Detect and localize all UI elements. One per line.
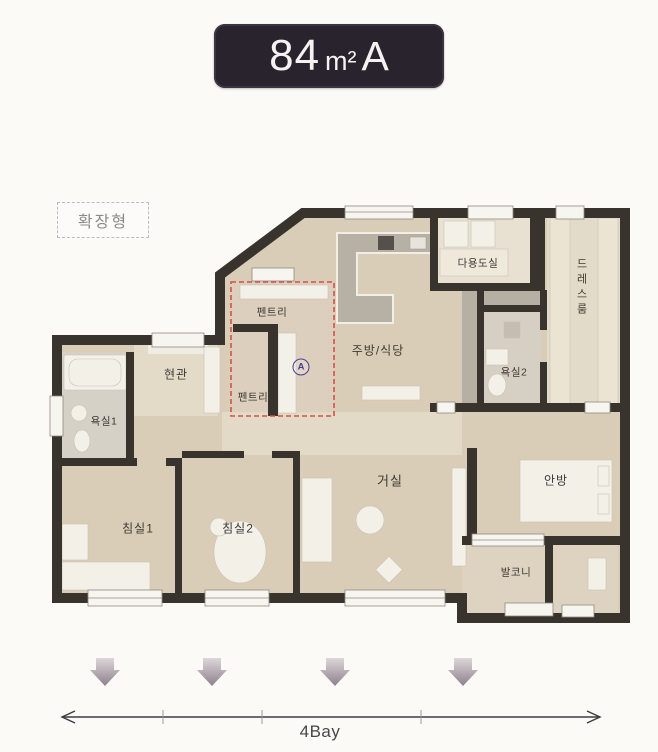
room-label-dressroom: 드레스룸 <box>573 258 589 318</box>
room-label-bedroom1: 침실1 <box>122 520 154 537</box>
sofa <box>302 478 332 562</box>
dining-table <box>362 386 420 400</box>
bed1-desk <box>62 524 88 560</box>
room-label-pantry-bottom: 펜트리 <box>238 390 268 405</box>
hall-floor <box>222 412 462 455</box>
expansion-marker-a: A <box>293 359 310 376</box>
living-rug <box>356 506 384 534</box>
bay-count-label: 4Bay <box>300 722 341 742</box>
bed1-bed <box>62 562 150 590</box>
tv-cabinet <box>452 468 466 566</box>
washer <box>444 221 468 247</box>
pantry-shelf <box>240 285 328 299</box>
bay-arrow-4 <box>448 658 478 686</box>
wall <box>293 451 300 598</box>
wall <box>430 213 438 290</box>
badge-area: 84 <box>269 24 320 88</box>
wall <box>430 283 545 291</box>
entrance-door <box>152 333 204 347</box>
bath1-sink <box>71 405 87 421</box>
wall <box>455 403 585 412</box>
wall <box>175 458 182 598</box>
bay-arrow-1 <box>90 658 120 686</box>
bay-arrows <box>90 658 478 686</box>
window-pantry <box>252 268 294 281</box>
plan-option-box: 확장형 <box>57 202 149 238</box>
wall <box>540 362 547 410</box>
badge-unit: m² <box>325 31 356 91</box>
room-label-bath2: 욕실2 <box>501 365 528 380</box>
wall <box>467 448 477 545</box>
wall <box>530 213 545 290</box>
room-label-bath1: 욕실1 <box>91 414 118 429</box>
wall <box>268 332 278 416</box>
bay-annotation <box>62 658 600 724</box>
window-kitchen <box>345 206 413 219</box>
door-balcony-room <box>562 605 594 617</box>
wall <box>233 324 278 332</box>
badge-type-letter: A <box>362 24 389 88</box>
door-master <box>437 402 455 413</box>
wall <box>430 403 437 412</box>
window-utility <box>468 206 513 219</box>
dryer <box>471 221 495 247</box>
bath1-toilet <box>74 430 90 452</box>
area-type-badge: 84m²A <box>214 24 444 88</box>
room-label-master: 안방 <box>544 472 568 489</box>
bath2-sink <box>486 349 508 365</box>
boiler-unit <box>588 558 606 590</box>
wall <box>57 458 137 466</box>
room-label-kitchen: 주방/식당 <box>352 342 405 359</box>
floor-plan-drawing <box>0 0 658 752</box>
wall <box>182 451 244 458</box>
room-label-pantry-top: 펜트리 <box>257 305 287 320</box>
wardrobe-right <box>598 218 618 404</box>
room-label-utility: 다용도실 <box>458 256 499 271</box>
window-bath1 <box>50 396 63 436</box>
room-label-entrance: 현관 <box>164 366 188 383</box>
room-label-bedroom2: 침실2 <box>222 520 254 537</box>
wardrobe-left <box>550 218 570 404</box>
bay-arrow-3 <box>320 658 350 686</box>
kitchen-sink <box>410 237 426 249</box>
pillow-2 <box>598 494 609 514</box>
pillow-1 <box>598 466 609 486</box>
wall <box>477 305 545 312</box>
floor-plan-page: 84m²A 확장형 펜트리 펜트리 현관 욕실1 침실1 침실2 주방/식당 다… <box>0 0 658 752</box>
wall <box>126 352 134 464</box>
room-label-living: 거실 <box>377 471 403 490</box>
pantry-closet <box>278 333 296 413</box>
window-dressroom <box>556 206 584 219</box>
entry-closet <box>204 347 220 413</box>
bay-arrow-2 <box>197 658 227 686</box>
door-dressroom <box>585 402 610 413</box>
shower <box>504 322 520 338</box>
room-label-balcony: 발코니 <box>501 565 531 580</box>
window-balcony <box>505 603 553 616</box>
stove <box>378 236 394 250</box>
corridor-gray <box>462 288 479 408</box>
